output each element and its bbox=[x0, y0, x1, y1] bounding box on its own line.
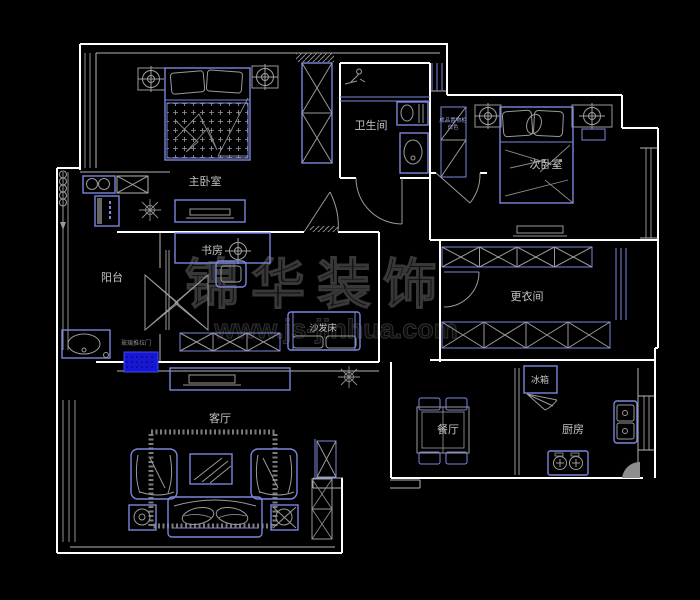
wall-hatch bbox=[310, 226, 338, 232]
plant-icon bbox=[139, 199, 161, 221]
room-label-bathroom: 卫生间 bbox=[355, 118, 388, 132]
label-fridge: 冰箱 bbox=[531, 374, 549, 385]
room-label-living: 客厅 bbox=[209, 411, 231, 425]
cabinet-note-line1: 成品置物柜 bbox=[439, 116, 467, 124]
room-label-second-bedroom: 次卧室 bbox=[530, 157, 563, 171]
cabinet-note-line2: 白色 bbox=[447, 123, 459, 131]
room-label-study: 书房 bbox=[201, 244, 223, 257]
sliding-door-note: 玻璃推拉门 bbox=[121, 339, 151, 347]
room-label-dressing: 更衣间 bbox=[511, 289, 544, 303]
wall-hatch bbox=[296, 53, 334, 62]
watermark-brand: 锦华装饰 bbox=[185, 255, 449, 315]
room-label-balcony: 阳台 bbox=[101, 270, 123, 284]
floor-plan-canvas: 锦华装饰 www.js-jinhua.com bbox=[0, 0, 700, 600]
label-sofa-bed: 沙发床 bbox=[309, 322, 336, 333]
plant-icon bbox=[338, 366, 360, 388]
floor-plan-drawing: 锦华装饰 www.js-jinhua.com bbox=[0, 0, 700, 600]
room-label-master-bedroom: 主卧室 bbox=[189, 174, 222, 188]
room-label-kitchen: 厨房 bbox=[562, 423, 584, 436]
room-label-dining: 餐厅 bbox=[437, 422, 459, 436]
